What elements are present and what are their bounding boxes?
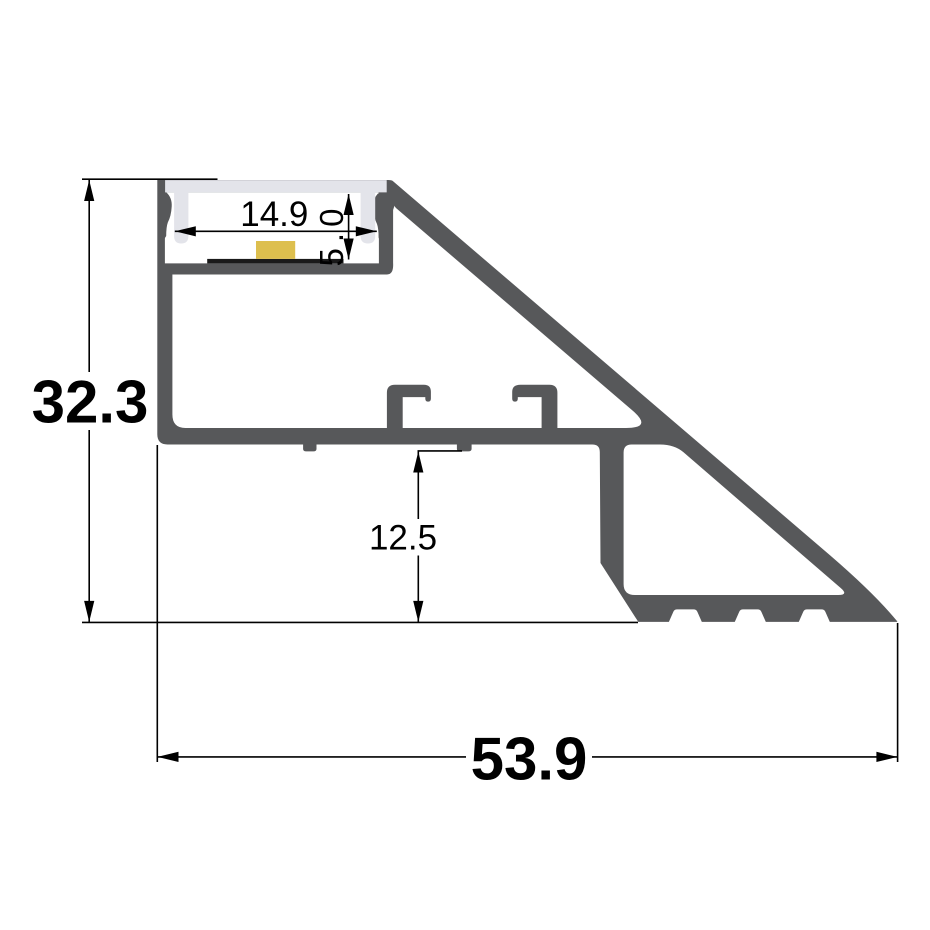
svg-text:12.5: 12.5 — [369, 519, 437, 558]
svg-text:53.9: 53.9 — [471, 726, 588, 793]
svg-text:32.3: 32.3 — [32, 369, 149, 436]
svg-text:14.9: 14.9 — [240, 195, 308, 234]
svg-text:5.0: 5.0 — [313, 203, 350, 267]
